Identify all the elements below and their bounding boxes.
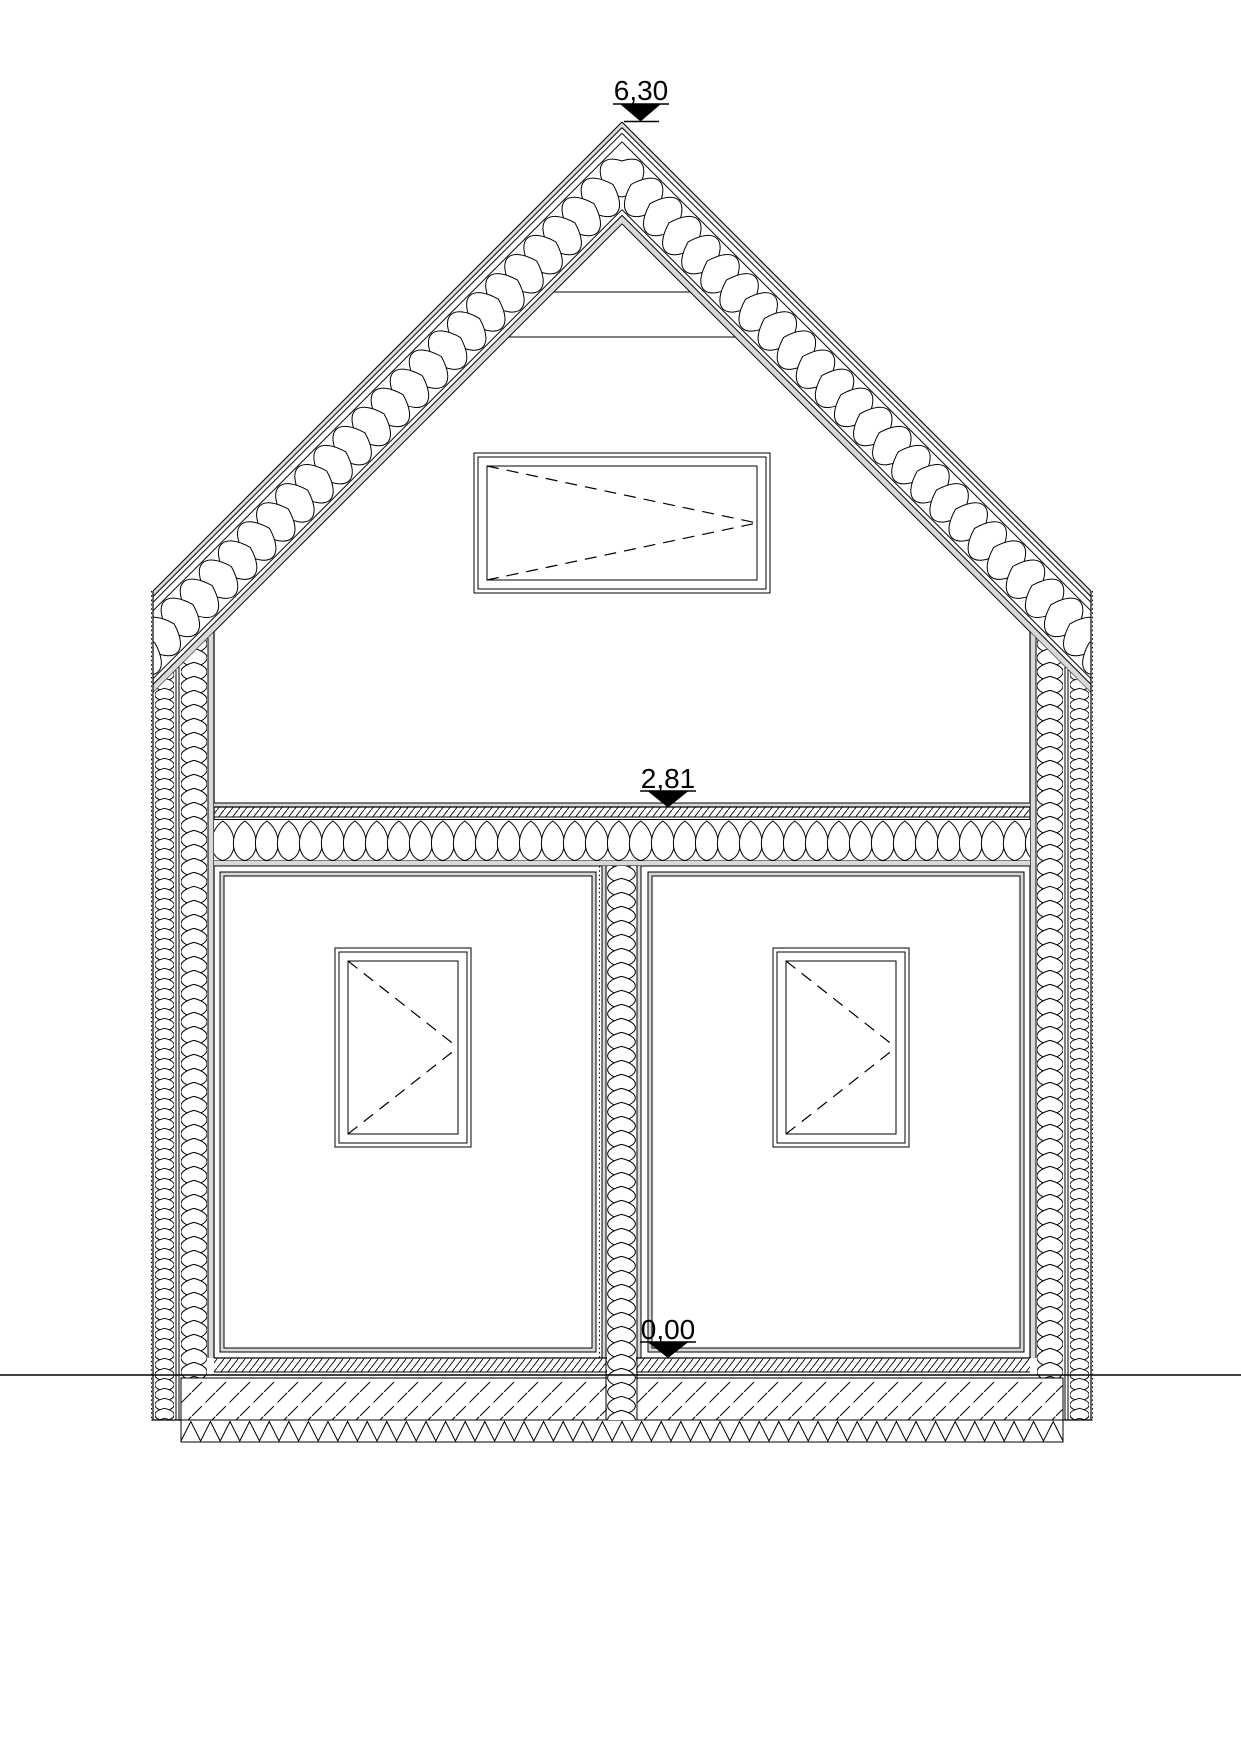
- insulation-loop: [1070, 1428, 1089, 1441]
- roof-layer-line: [622, 215, 1091, 684]
- elevation-marker-ridge: 6,30: [613, 75, 669, 122]
- insulation-loop-chain: [155, 668, 174, 1441]
- window-frame-inner: [348, 961, 458, 1134]
- partition-lining: [637, 866, 641, 1358]
- elevation-marker-upper-floor: 2,81: [640, 763, 696, 808]
- upper-floor-level-label: 2,81: [641, 763, 696, 794]
- attic-window: [474, 453, 770, 593]
- level-triangle-icon: [620, 104, 661, 122]
- building-section-drawing: 6,30 2,81 0,00: [0, 0, 1241, 1755]
- insulation-loop-chain: [1070, 668, 1089, 1441]
- insulation-loop-chain: [605, 159, 1121, 675]
- roof-assembly: [123, 122, 1121, 693]
- wall-lining: [208, 632, 214, 1358]
- partition-foundation-strip: [606, 850, 637, 1443]
- window-frame-inner: [786, 961, 896, 1134]
- floor-screed-hatch: [214, 807, 1030, 817]
- partition-lining: [602, 866, 606, 1358]
- ground-floor-level-label: 0,00: [641, 1314, 696, 1345]
- ceiling-lining-band: [214, 861, 1030, 866]
- ground-floor-window-left: [335, 948, 471, 1147]
- ridge-level-label: 6,30: [614, 75, 669, 106]
- wall-lining: [1030, 632, 1036, 1358]
- upper-floor-slab: [211, 803, 1048, 866]
- roof-layer-line: [622, 210, 1091, 679]
- roof-layer-line: [153, 215, 622, 684]
- roof-layer-line: [153, 210, 622, 679]
- window-frame-inner: [487, 466, 757, 580]
- section-drawing-page: 6,30 2,81 0,00: [0, 0, 1241, 1755]
- insulation-loop-chain: [123, 159, 639, 675]
- ground-floor-window-right: [773, 948, 909, 1147]
- insulation-loop: [155, 1428, 174, 1441]
- insulation-loop-chain: [181, 634, 207, 1409]
- insulation-loop-chain: [1037, 634, 1063, 1409]
